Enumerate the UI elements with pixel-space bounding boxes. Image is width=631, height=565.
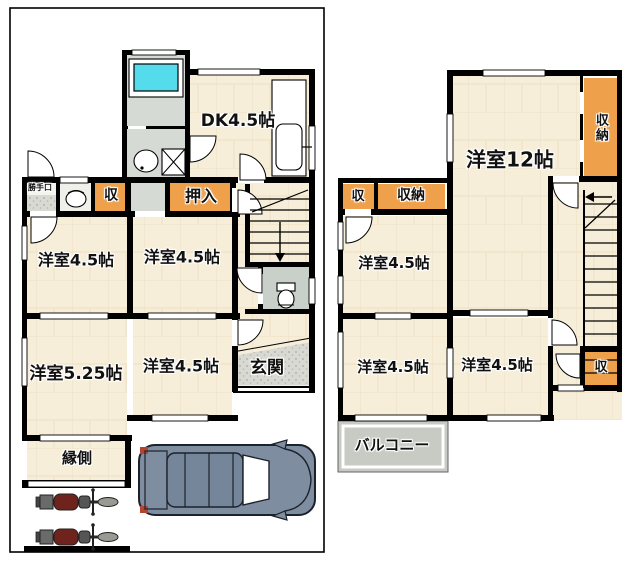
- label-shu-west: 収: [351, 190, 364, 204]
- label-shu-se: 収: [594, 361, 607, 375]
- floorplan-drawing: [0, 0, 631, 565]
- motorcycle-front-wheel: [98, 498, 118, 507]
- floorplan-image: DK4.5帖 押入 収 勝手口 洋室4.5帖 洋室4.5帖 洋室5.25帖 洋室…: [0, 0, 631, 565]
- car-windshield: [243, 455, 269, 505]
- passage-washroom: [131, 183, 165, 213]
- kitchen-sink: [276, 124, 302, 170]
- label-katteguchi: 勝手口: [28, 184, 52, 192]
- wc-bowl-small: [66, 191, 86, 207]
- label-genkan: 玄関: [250, 360, 284, 378]
- label-room-sw: 洋室5.25帖: [30, 366, 123, 384]
- label-room-s-center: 洋室4.5帖: [143, 359, 219, 376]
- door-katteguchi: [28, 151, 54, 177]
- car: [139, 440, 315, 520]
- label-room-nw: 洋室4.5帖: [38, 253, 114, 270]
- car-roof: [167, 453, 243, 507]
- label-2f-se: 洋室4.5帖: [461, 358, 533, 374]
- bathtub: [134, 64, 178, 91]
- label-shuno-west: 収納: [397, 189, 425, 204]
- label-room-n-center: 洋室4.5帖: [144, 250, 220, 267]
- label-main-12: 洋室12帖: [466, 150, 554, 171]
- label-oshiire: 押入: [185, 189, 217, 206]
- katteguchi-step: [24, 195, 57, 212]
- label-balcony: バルコニー: [355, 438, 430, 454]
- motorcycle-seat: [54, 529, 78, 545]
- label-dk: DK4.5帖: [201, 113, 275, 131]
- label-engawa: 縁側: [62, 451, 92, 467]
- motorcycle-seat: [54, 494, 78, 510]
- label-shuno-east: 収納: [593, 113, 607, 143]
- motorcycle-1: [36, 488, 118, 516]
- label-shu-1f: 収: [104, 189, 118, 204]
- washbasin: [134, 150, 158, 172]
- label-2f-sw: 洋室4.5帖: [357, 360, 429, 376]
- motorcycle-front-wheel: [98, 533, 118, 542]
- label-2f-nw: 洋室4.5帖: [358, 256, 430, 272]
